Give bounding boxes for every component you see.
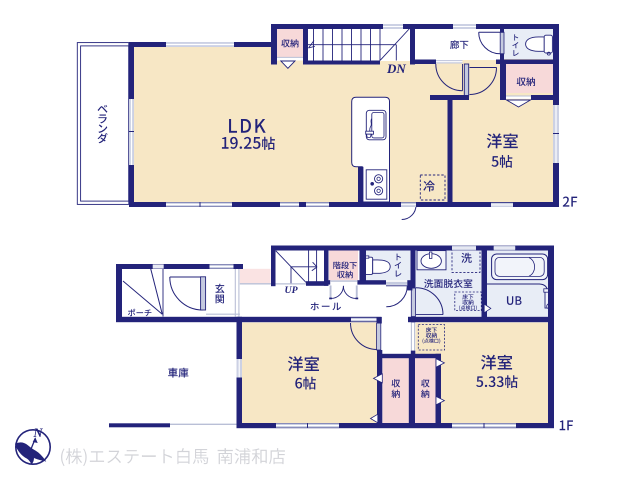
svg-text:N: N [33, 426, 44, 440]
svg-text:UP: UP [285, 285, 299, 296]
svg-text:DN: DN [386, 61, 406, 76]
